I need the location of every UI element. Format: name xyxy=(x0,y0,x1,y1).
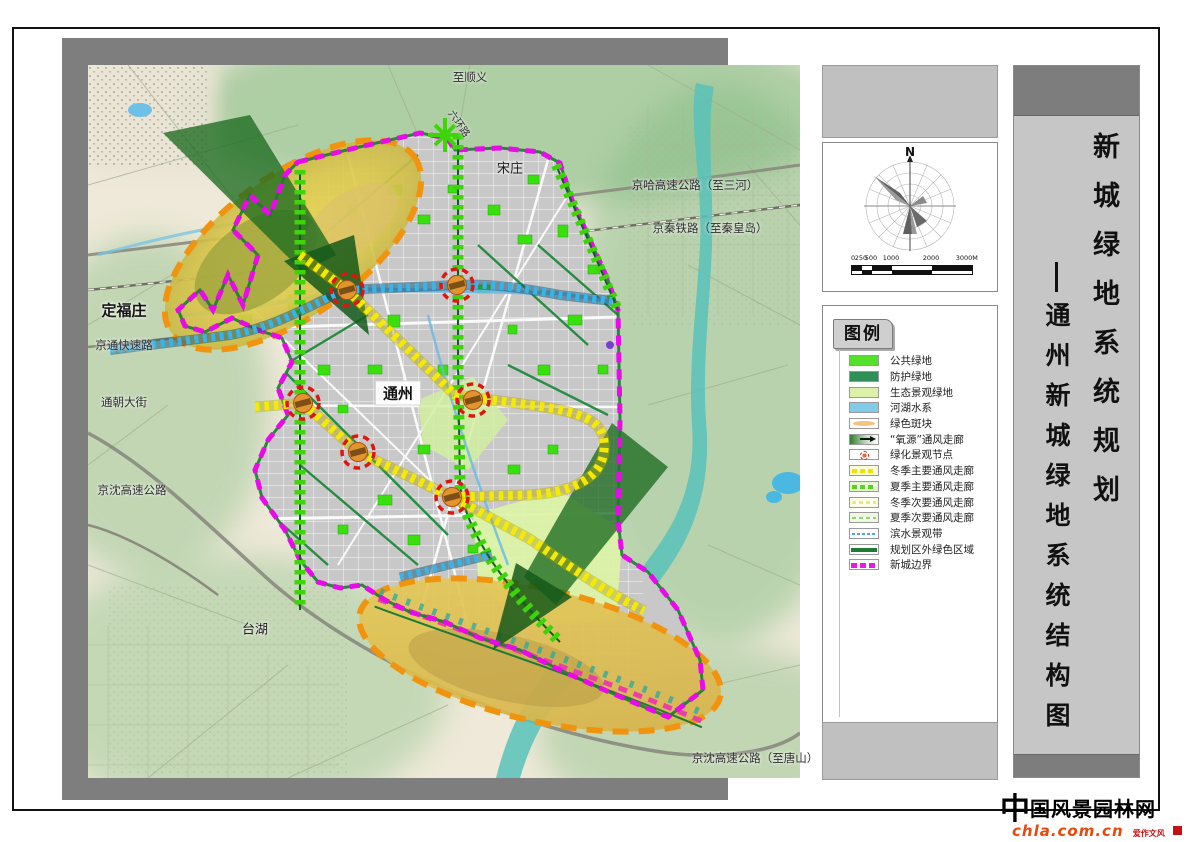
legend-item-label: 生态景观绿地 xyxy=(890,385,953,400)
map-label: 定福庄 xyxy=(101,300,146,321)
map-label: 京沈高速公路 xyxy=(98,482,167,498)
map-label: 京秦铁路（至秦皇岛） xyxy=(653,220,768,236)
scalebar xyxy=(851,265,971,273)
legend-swatch-eco-green xyxy=(849,387,879,398)
legend-item: 规划区外绿色区域 xyxy=(849,541,993,557)
site-name: 国风景园林网 xyxy=(1030,797,1156,821)
legend-item: 防护绿地 xyxy=(849,369,993,385)
legend-swatch-oxygen-corridor xyxy=(849,434,879,445)
legend-item: 夏季次要通风走廊 xyxy=(849,510,993,526)
legend-item-label: 绿色斑块 xyxy=(890,416,932,431)
legend-item: 河湖水系 xyxy=(849,400,993,416)
map-label: 至顺义 xyxy=(453,69,488,85)
legend-title: 图例 xyxy=(833,319,893,349)
legend-panel: 图例 公共绿地防护绿地生态景观绿地河湖水系绿色斑块“氧源”通风走廊绿化景观节点冬… xyxy=(822,305,998,780)
legend-footer-box xyxy=(822,722,998,780)
legend-item: 冬季主要通风走廊 xyxy=(849,463,993,479)
legend-swatch-water xyxy=(849,402,879,413)
legend-swatch-landscape-node xyxy=(849,449,879,460)
legend-item: 绿化景观节点 xyxy=(849,447,993,463)
info-header-box xyxy=(822,65,998,138)
map-label: 通州 xyxy=(375,381,421,406)
legend-item-label: 冬季次要通风走廊 xyxy=(890,495,974,510)
map-label: 宋庄 xyxy=(497,158,523,177)
legend-item-label: 规划区外绿色区域 xyxy=(890,542,974,557)
compass-rose-icon xyxy=(824,156,996,252)
legend-item: 新城边界 xyxy=(849,557,993,573)
legend-swatch-summer-minor xyxy=(849,512,879,523)
map-label: 通朝大街 xyxy=(101,394,147,410)
title-band-bottom xyxy=(1014,754,1139,777)
legend-item-label: 绿化景观节点 xyxy=(890,447,953,462)
legend-item: 绿色斑块 xyxy=(849,416,993,432)
legend-item: “氧源”通风走廊 xyxy=(849,431,993,447)
map-label: 京通快速路 xyxy=(95,337,153,353)
legend-item-label: 夏季次要通风走廊 xyxy=(890,510,974,525)
map-label: 京沈高速公路（至唐山） xyxy=(692,750,819,766)
legend-item: 公共绿地 xyxy=(849,353,993,369)
scale-tick: 3000M xyxy=(956,254,978,262)
legend-swatch-public-green xyxy=(849,355,879,366)
drawing-subtitle: 通州新城绿地系统结构图 xyxy=(1038,302,1074,742)
legend-item-label: 夏季主要通风走廊 xyxy=(890,479,974,494)
scalebar-labels: 0250500100020003000M xyxy=(851,254,975,263)
scale-tick: 500 xyxy=(865,254,877,262)
scale-tick: 1000 xyxy=(883,254,900,262)
legend-item: 滨水景观带 xyxy=(849,526,993,542)
legend-item: 夏季主要通风走廊 xyxy=(849,479,993,495)
title-block: 新城绿地系统规划 通州新城绿地系统结构图 xyxy=(1013,65,1140,778)
legend-item-label: 滨水景观带 xyxy=(890,526,943,541)
legend-swatch-green-patch xyxy=(849,418,879,429)
watermark-slogan: 爱作文风 xyxy=(1133,829,1165,838)
site-watermark: 中国风景园林网 chla.com.cn 爱作文风 xyxy=(1000,797,1190,842)
legend-swatch-city-boundary xyxy=(849,559,879,570)
legend-item-label: 新城边界 xyxy=(890,557,932,572)
legend-swatch-winter-minor xyxy=(849,497,879,508)
planning-map: 至顺义六环路宋庄京哈高速公路（至三河）京秦铁路（至秦皇岛）定福庄京通快速路通朝大… xyxy=(88,65,800,778)
legend-swatch-summer-main xyxy=(849,481,879,492)
scale-tick: 2000 xyxy=(923,254,940,262)
legend-item-label: 河湖水系 xyxy=(890,400,932,415)
legend-item-label: 公共绿地 xyxy=(890,353,932,368)
map-label: 京哈高速公路（至三河） xyxy=(632,177,759,193)
site-url: chla.com.cn xyxy=(1012,822,1124,840)
title-dash xyxy=(1055,262,1058,292)
legend-swatch-winter-main xyxy=(849,465,879,476)
legend-swatch-waterfront-belt xyxy=(849,528,879,539)
compass-panel: N 0250500100020003000M xyxy=(822,142,998,292)
legend-item-label: 冬季主要通风走廊 xyxy=(890,463,974,478)
legend-item-label: “氧源”通风走廊 xyxy=(890,432,964,447)
arrow-icon xyxy=(870,436,876,442)
planning-map-graphic xyxy=(88,65,800,778)
legend-item: 生态景观绿地 xyxy=(849,384,993,400)
watermark-seal-icon xyxy=(1173,826,1182,835)
legend-item-label: 防护绿地 xyxy=(890,369,932,384)
title-band-top xyxy=(1014,66,1139,116)
drawing-main-title: 新城绿地系统规划 xyxy=(1084,132,1123,524)
map-label: 台湖 xyxy=(242,619,268,638)
legend-item: 冬季次要通风走廊 xyxy=(849,494,993,510)
legend-swatch-protective-green xyxy=(849,371,879,382)
legend-swatch-outside-green xyxy=(849,544,879,555)
legend-rule xyxy=(839,350,840,717)
